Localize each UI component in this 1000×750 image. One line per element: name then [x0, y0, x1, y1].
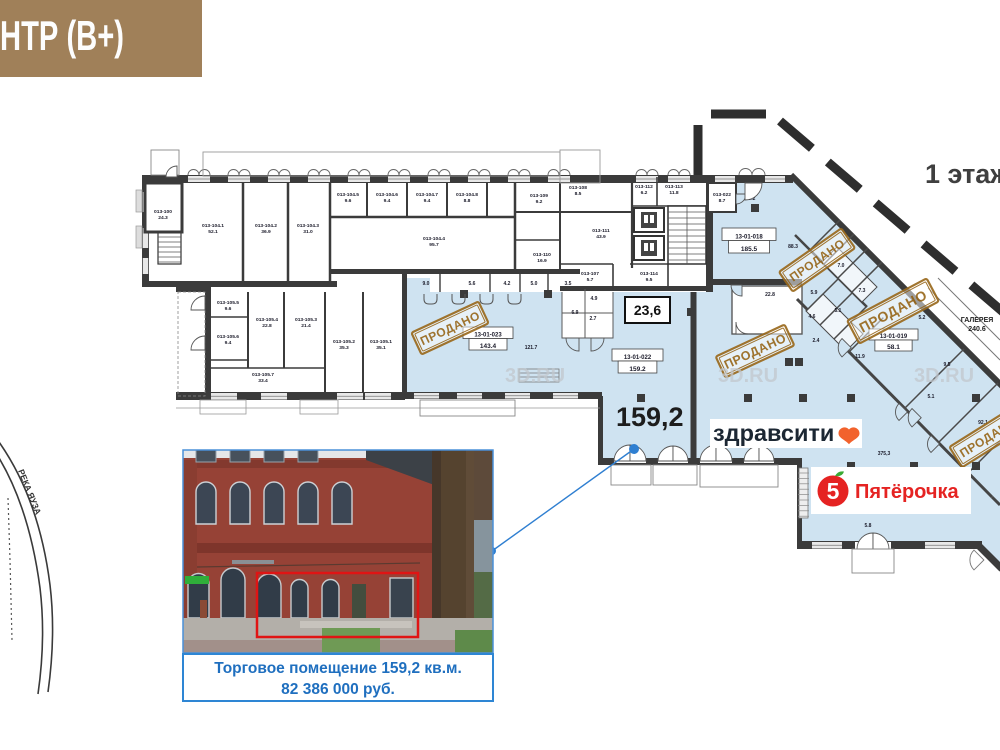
svg-text:82 386 000 руб.: 82 386 000 руб. [281, 681, 395, 698]
svg-text:013-104.2: 013-104.2 [255, 223, 277, 229]
svg-text:013-113: 013-113 [665, 184, 683, 190]
svg-text:35.3: 35.3 [339, 345, 349, 351]
svg-text:5.8: 5.8 [865, 523, 872, 529]
svg-text:013-104.8: 013-104.8 [456, 192, 478, 198]
svg-text:121.7: 121.7 [525, 345, 538, 351]
svg-text:013-110: 013-110 [533, 252, 551, 258]
svg-text:9.4: 9.4 [225, 340, 232, 346]
svg-text:3D.RU: 3D.RU [914, 365, 974, 387]
svg-text:5.1: 5.1 [835, 308, 842, 314]
svg-text:11.8: 11.8 [669, 190, 679, 196]
svg-text:7.3: 7.3 [859, 288, 866, 294]
svg-text:9.6: 9.6 [225, 306, 232, 312]
svg-text:013-108: 013-108 [569, 185, 587, 191]
svg-text:9.4: 9.4 [384, 198, 391, 204]
svg-text:013-105.6: 013-105.6 [217, 334, 239, 340]
svg-text:88.3: 88.3 [788, 244, 798, 250]
svg-text:9.5: 9.5 [646, 277, 653, 283]
svg-text:31.0: 31.0 [303, 229, 313, 235]
svg-text:43.9: 43.9 [596, 234, 606, 240]
svg-text:013-100: 013-100 [154, 209, 172, 215]
svg-text:36.9: 36.9 [261, 229, 271, 235]
svg-text:4.9: 4.9 [591, 296, 598, 302]
svg-text:013-111: 013-111 [592, 228, 610, 234]
svg-text:185.5: 185.5 [741, 246, 758, 253]
svg-text:013-105.4: 013-105.4 [256, 317, 278, 323]
svg-text:11.9: 11.9 [855, 354, 865, 360]
svg-text:95.7: 95.7 [429, 242, 439, 248]
svg-text:23,6: 23,6 [634, 302, 661, 318]
svg-text:13-01-022: 13-01-022 [624, 355, 652, 361]
svg-text:375,3: 375,3 [878, 451, 891, 457]
svg-text:ГАЛЕРЕЯ: ГАЛЕРЕЯ [961, 317, 994, 324]
svg-text:159.2: 159.2 [629, 366, 646, 373]
svg-text:13-01-018: 13-01-018 [735, 235, 763, 241]
svg-text:33.4: 33.4 [258, 378, 268, 384]
svg-text:240.6: 240.6 [968, 326, 986, 333]
svg-text:13-01-019: 13-01-019 [880, 334, 908, 340]
svg-text:4.2: 4.2 [504, 281, 511, 287]
svg-text:13-01-023: 13-01-023 [474, 333, 502, 339]
svg-text:4.6: 4.6 [809, 314, 816, 320]
svg-text:159,2: 159,2 [616, 402, 684, 432]
svg-text:5.9: 5.9 [811, 290, 818, 296]
svg-text:6.9: 6.9 [572, 310, 579, 316]
svg-text:здравсити: здравсити [713, 420, 834, 446]
svg-text:2.7: 2.7 [590, 316, 597, 322]
svg-text:013-112: 013-112 [635, 184, 653, 190]
svg-text:9.4: 9.4 [424, 198, 431, 204]
svg-text:013-104.1: 013-104.1 [202, 223, 224, 229]
svg-text:52.1: 52.1 [208, 229, 218, 235]
svg-text:143.4: 143.4 [480, 343, 497, 350]
svg-text:5.2: 5.2 [919, 315, 926, 321]
svg-text:7.0: 7.0 [838, 263, 845, 269]
svg-text:5.6: 5.6 [469, 281, 476, 287]
svg-text:9.0: 9.0 [423, 281, 430, 287]
svg-text:013-105.1: 013-105.1 [370, 339, 392, 345]
svg-text:013-105.3: 013-105.3 [295, 317, 317, 323]
svg-text:013-105.7: 013-105.7 [252, 372, 274, 378]
svg-text:013-109: 013-109 [530, 193, 548, 199]
svg-text:1 этаж: 1 этаж [925, 159, 1000, 189]
svg-text:3D.RU: 3D.RU [505, 365, 565, 387]
svg-text:35.1: 35.1 [376, 345, 386, 351]
svg-text:5.1: 5.1 [928, 394, 935, 400]
svg-text:НТР (В+): НТР (В+) [0, 12, 124, 59]
svg-text:22.8: 22.8 [765, 292, 775, 298]
svg-text:22.8: 22.8 [262, 323, 272, 329]
svg-text:013-105.2: 013-105.2 [333, 339, 355, 345]
svg-text:013-105.5: 013-105.5 [217, 300, 239, 306]
svg-text:9.2: 9.2 [536, 199, 543, 205]
svg-text:013-104.7: 013-104.7 [416, 192, 438, 198]
svg-text:24.3: 24.3 [158, 215, 168, 221]
svg-text:013-104.5: 013-104.5 [337, 192, 359, 198]
svg-text:6.2: 6.2 [641, 190, 648, 196]
svg-text:8.5: 8.5 [575, 191, 582, 197]
svg-text:013-104.4: 013-104.4 [423, 236, 445, 242]
svg-text:013-104.6: 013-104.6 [376, 192, 398, 198]
svg-text:8.7: 8.7 [719, 198, 726, 204]
svg-text:5.0: 5.0 [531, 281, 538, 287]
svg-text:16.9: 16.9 [537, 258, 547, 264]
svg-text:3.5: 3.5 [565, 281, 572, 287]
svg-text:5: 5 [827, 478, 840, 504]
svg-text:2.4: 2.4 [813, 338, 820, 344]
svg-text:013-107: 013-107 [581, 271, 599, 277]
svg-text:Пятёрочка: Пятёрочка [855, 481, 960, 503]
svg-text:21.4: 21.4 [301, 323, 311, 329]
svg-text:3D.RU: 3D.RU [718, 365, 778, 387]
svg-text:013-022: 013-022 [713, 192, 731, 198]
svg-text:8.8: 8.8 [464, 198, 471, 204]
svg-text:9.6: 9.6 [345, 198, 352, 204]
svg-text:013-104.3: 013-104.3 [297, 223, 319, 229]
svg-text:58.1: 58.1 [887, 344, 900, 351]
svg-text:013-114: 013-114 [640, 271, 658, 277]
svg-text:5.7: 5.7 [587, 277, 594, 283]
svg-text:Торговое помещение 159,2 кв.м.: Торговое помещение 159,2 кв.м. [214, 660, 462, 677]
